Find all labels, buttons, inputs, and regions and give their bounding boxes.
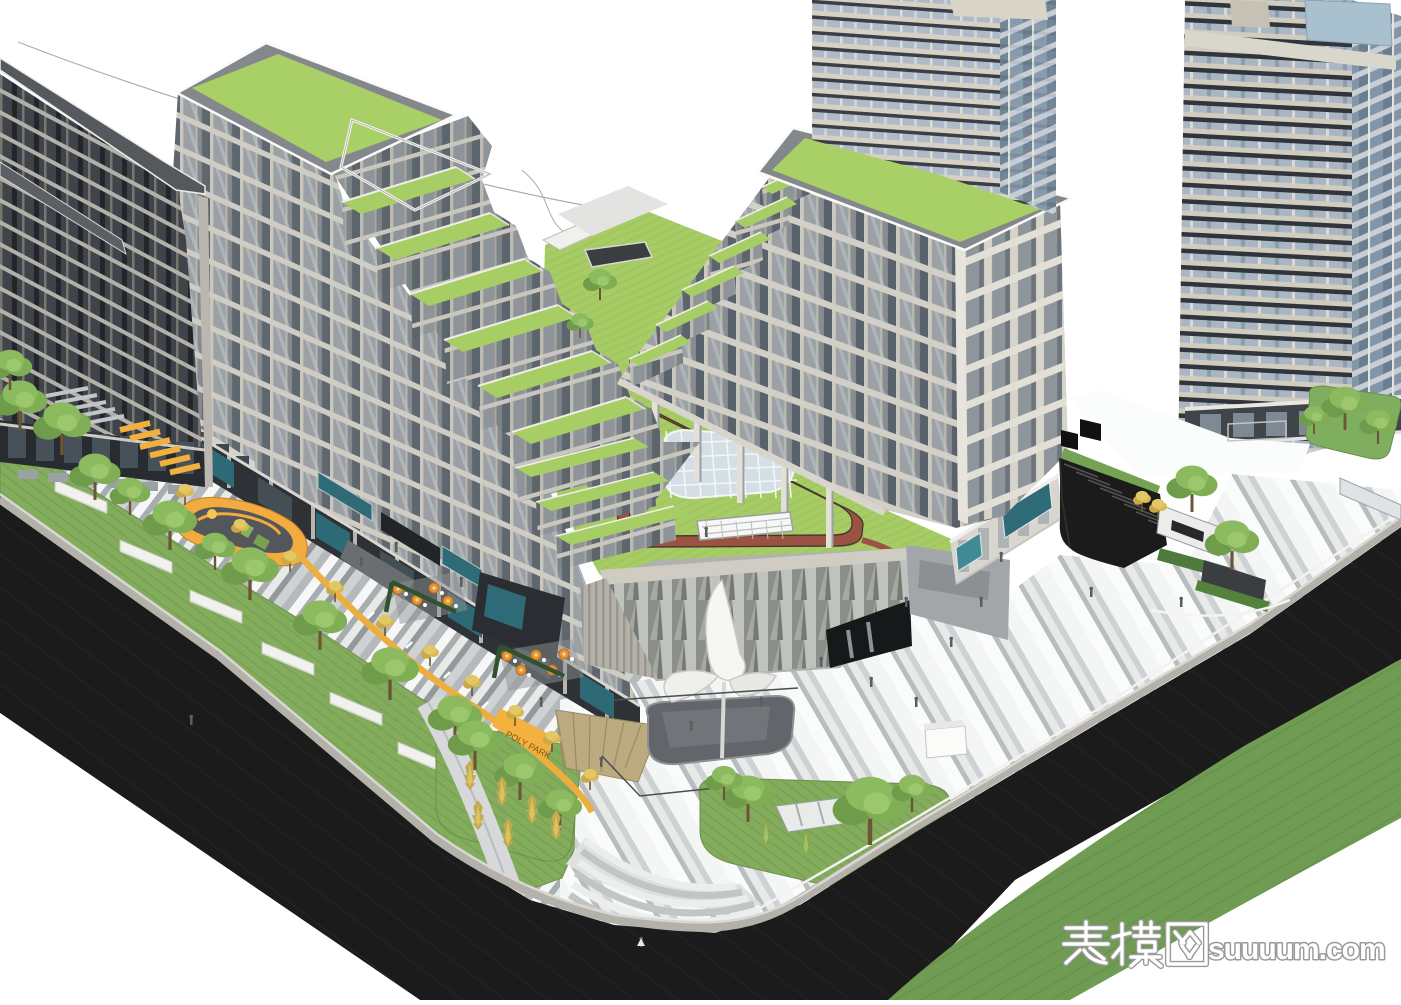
svg-text:suuuum.com: suuuum.com (1208, 933, 1385, 966)
